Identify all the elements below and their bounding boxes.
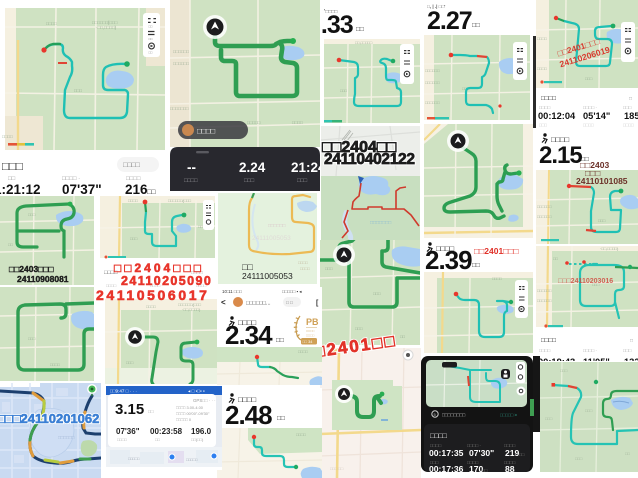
svg-text:□□: □□ bbox=[149, 25, 153, 29]
svg-text:24110101085: 24110101085 bbox=[576, 176, 628, 186]
svg-text:□: □ bbox=[629, 96, 632, 102]
svg-text:24110506017: 24110506017 bbox=[96, 287, 209, 303]
svg-text:□□ 34: □□ 34 bbox=[303, 340, 313, 344]
svg-text:□□□□: □□□□ bbox=[128, 198, 138, 203]
svg-text:□□□□: □□□□ bbox=[197, 127, 216, 136]
svg-text:□□□□ 3.00-4.00: □□□□ 3.00-4.00 bbox=[176, 405, 204, 410]
svg-text:2.34: 2.34 bbox=[225, 320, 273, 350]
svg-text:05'14": 05'14" bbox=[583, 111, 610, 121]
svg-text:□□□□□□: □□□□□□ bbox=[537, 214, 552, 219]
svg-text:□□□□: □□□□ bbox=[298, 260, 308, 265]
svg-text:□□□□ ·: □□□□ · bbox=[583, 348, 597, 353]
svg-text:196.0: 196.0 bbox=[191, 427, 212, 436]
svg-text:2.24: 2.24 bbox=[239, 160, 266, 175]
svg-text:□□□□: □□□□ bbox=[184, 178, 198, 184]
svg-text:□□(□□): □□(□□) bbox=[191, 437, 204, 442]
svg-text:00:23:58: 00:23:58 bbox=[150, 427, 183, 436]
svg-text:□□□□□□: □□□□□□ bbox=[425, 68, 440, 73]
svg-text:□□□: □□□ bbox=[244, 178, 255, 184]
svg-text:□□□□□ 0: □□□□□ 0 bbox=[176, 417, 192, 422]
svg-text:24111005053: 24111005053 bbox=[242, 271, 293, 281]
svg-text:□□: □□ bbox=[553, 256, 558, 261]
svg-text:□□□□: □□□□ bbox=[541, 337, 556, 344]
svg-text:□□: □□ bbox=[356, 26, 364, 33]
svg-text:□□: □□ bbox=[198, 224, 203, 229]
svg-text:□□□□: □□□□ bbox=[430, 433, 448, 440]
svg-text:□□□: □□□ bbox=[575, 456, 583, 461]
svg-text:□□□□: □□□□ bbox=[50, 362, 60, 367]
svg-text:□□: □□ bbox=[400, 334, 406, 339]
svg-text:24110908081: 24110908081 bbox=[17, 274, 69, 284]
svg-text:□□□24110203016: □□□24110203016 bbox=[558, 278, 613, 285]
svg-text:□□□: □□□ bbox=[28, 336, 36, 341]
svg-text:--: -- bbox=[187, 160, 196, 175]
svg-text:□□□□: □□□□ bbox=[623, 123, 634, 128]
svg-text:□□□: □□□ bbox=[126, 360, 134, 365]
svg-text:□□□: □□□ bbox=[623, 348, 632, 353]
svg-text:□□□□□□: □□□□□□ bbox=[425, 100, 440, 105]
svg-text:□□□□: □□□□ bbox=[541, 95, 556, 102]
svg-text:<: < bbox=[221, 298, 226, 307]
svg-text:□□□□: □□□□ bbox=[306, 329, 314, 333]
svg-text:□□□□□□: □□□□□□ bbox=[173, 49, 189, 54]
svg-text:216: 216 bbox=[125, 182, 148, 197]
svg-text:□□: □□ bbox=[277, 415, 285, 422]
svg-text:□□□□□□: □□□□□□ bbox=[173, 61, 189, 66]
svg-text:□□: □□ bbox=[148, 409, 154, 414]
svg-text:□□□24110201062: □□□24110201062 bbox=[0, 411, 99, 426]
svg-text:□□□□□□□□: □□□□□□□□ bbox=[442, 414, 465, 419]
svg-text:□□□□ 00'00"-09'30": □□□□ 00'00"-09'30" bbox=[176, 411, 210, 416]
svg-text:□□: □□ bbox=[149, 37, 153, 41]
svg-text:□□□: □□□ bbox=[373, 291, 381, 296]
svg-text:□□□□: □□□□ bbox=[292, 120, 303, 125]
svg-text:07'30": 07'30" bbox=[469, 448, 494, 458]
svg-text:□□□□: □□□□ bbox=[2, 134, 13, 139]
svg-text:□□9:47 □ · · ·: □□9:47 □ · · · bbox=[110, 389, 137, 394]
svg-text:185: 185 bbox=[624, 111, 638, 121]
svg-text:□□2401□□□: □□2401□□□ bbox=[474, 246, 519, 256]
svg-text:□□□: □□□ bbox=[28, 212, 36, 217]
svg-text:□□□□: □□□□ bbox=[298, 349, 308, 354]
svg-text:□□□□□: □□□□□ bbox=[186, 458, 198, 462]
svg-text:□□: □□ bbox=[276, 337, 284, 344]
svg-text:□□□: □□□ bbox=[545, 416, 553, 421]
svg-text:1:21:12: 1:21:12 bbox=[0, 182, 41, 197]
svg-text:□□□□: □□□□ bbox=[306, 334, 314, 338]
svg-text:□□: □□ bbox=[149, 51, 153, 55]
svg-text:□□□□: □□□□ bbox=[539, 348, 550, 353]
svg-text:□□□: □□□ bbox=[623, 105, 632, 110]
svg-text:□□□□: □□□□ bbox=[537, 36, 547, 41]
svg-text:□□□: □□□ bbox=[598, 218, 606, 223]
svg-text:2.48: 2.48 bbox=[225, 400, 272, 430]
svg-text:□□□□□□: □□□□□□ bbox=[537, 204, 552, 209]
svg-text:□□□□□ >: □□□□□ > bbox=[500, 413, 517, 418]
svg-text:□□□: □□□ bbox=[74, 88, 82, 93]
svg-text:□□□□□: □□□□□ bbox=[247, 120, 261, 125]
svg-text:□□□□□□(□□□: □□□□□□(□□□ bbox=[168, 198, 192, 203]
svg-text:□□□: □□□ bbox=[539, 123, 547, 128]
svg-text:□□: □□ bbox=[472, 22, 480, 29]
svg-text:2.15: 2.15 bbox=[539, 142, 582, 169]
svg-text:2.27: 2.27 bbox=[427, 7, 472, 35]
svg-text:□□□□□□□: □□□□□□□ bbox=[170, 106, 189, 111]
svg-text:□: □ bbox=[630, 338, 633, 344]
svg-text:□□□: □□□ bbox=[2, 161, 23, 173]
svg-text:2.39: 2.39 bbox=[425, 245, 472, 275]
svg-text:□□: □□ bbox=[155, 437, 160, 442]
svg-text:□□□□: □□□□ bbox=[146, 304, 156, 309]
svg-text:PB: PB bbox=[306, 317, 319, 327]
svg-text:□□□: □□□ bbox=[130, 236, 138, 241]
svg-text:00:17:35: 00:17:35 bbox=[429, 448, 464, 458]
svg-text:◂ □ ▪□▪ ▪: ◂ □ ▪□▪ ▪ bbox=[188, 389, 205, 394]
svg-text:□□: □□ bbox=[147, 189, 156, 196]
svg-text:□□: □□ bbox=[8, 242, 13, 247]
svg-text:□□□: □□□ bbox=[340, 89, 348, 93]
svg-text:·□□,□□□□): ·□□,□□□□) bbox=[182, 307, 201, 312]
svg-text:□□□□□□: □□□□□□ bbox=[425, 80, 440, 85]
svg-text:□□: □□ bbox=[472, 262, 480, 269]
svg-text:□□□□□: □□□□□ bbox=[128, 457, 140, 461]
svg-text:24110205090: 24110205090 bbox=[121, 274, 212, 288]
svg-text:□□□□: □□□□ bbox=[492, 276, 502, 281]
svg-text:□□□: □□□ bbox=[585, 408, 593, 413]
svg-text:□□□: □□□ bbox=[560, 368, 568, 373]
svg-text:□□□: □□□ bbox=[585, 76, 593, 81]
svg-text:□□□□□□: □□□□□□ bbox=[537, 288, 552, 293]
svg-text:□□□□□□: □□□□□□ bbox=[58, 435, 75, 440]
svg-text:GPS□□ · · ·: GPS□□ · · · bbox=[193, 398, 216, 403]
svg-text:□□□□: □□□□ bbox=[46, 21, 57, 26]
svg-text:24110402122: 24110402122 bbox=[324, 151, 415, 168]
svg-text:□ □: □ □ bbox=[286, 300, 293, 305]
svg-text:□□□□: □□□□ bbox=[583, 123, 594, 128]
svg-text:□□□□: □□□□ bbox=[300, 266, 310, 271]
svg-text:07'36": 07'36" bbox=[116, 427, 140, 436]
svg-text:□□□□: □□□□ bbox=[537, 66, 547, 71]
svg-text:□□□□□□: □□□□□□ bbox=[268, 224, 285, 229]
svg-text:□□: □□ bbox=[519, 452, 525, 457]
svg-text:□□2404□□□: □□2404□□□ bbox=[114, 261, 204, 275]
svg-text:07'37": 07'37" bbox=[62, 182, 102, 197]
svg-text:□□□□□ ▪ ◂: □□□□□ ▪ ◂ bbox=[282, 289, 301, 294]
svg-text:□□□□□□...: □□□□□□... bbox=[246, 301, 271, 307]
svg-text:□□,□□□□□: □□,□□□□□ bbox=[355, 41, 373, 45]
svg-text:□□□□ ·: □□□□ · bbox=[583, 105, 597, 110]
svg-text:24111005053: 24111005053 bbox=[252, 235, 291, 242]
svg-text:219: 219 bbox=[505, 448, 520, 458]
svg-text:□□□□: □□□□ bbox=[123, 162, 141, 169]
svg-text:□□: □□ bbox=[625, 451, 630, 456]
svg-text:□□□□□□□: □□□□□□□ bbox=[370, 220, 391, 226]
svg-text:□□□: □□□ bbox=[297, 178, 308, 184]
svg-text:·□□,□□□□): ·□□,□□□□) bbox=[96, 25, 117, 30]
svg-text:□□2403□□□: □□2403□□□ bbox=[9, 264, 54, 274]
svg-text:·□□,□□□□): ·□□,□□□□) bbox=[600, 246, 619, 251]
svg-text:□□□□: □□□□ bbox=[117, 437, 127, 442]
svg-text:□□□ □□: □□□ □□ bbox=[330, 466, 344, 471]
svg-text:□□□: □□□ bbox=[325, 266, 333, 271]
svg-text:□□□□: □□□□ bbox=[539, 105, 550, 110]
svg-text:□□□□: □□□□ bbox=[296, 432, 306, 437]
svg-text:00:12:04: 00:12:04 bbox=[538, 111, 576, 121]
svg-text:□□□□□□: □□□□□□ bbox=[537, 298, 552, 303]
svg-text:□□□: □□□ bbox=[355, 326, 363, 331]
svg-text:3.15: 3.15 bbox=[115, 401, 144, 418]
svg-text:10:11 □□□: 10:11 □□□ bbox=[222, 289, 242, 294]
